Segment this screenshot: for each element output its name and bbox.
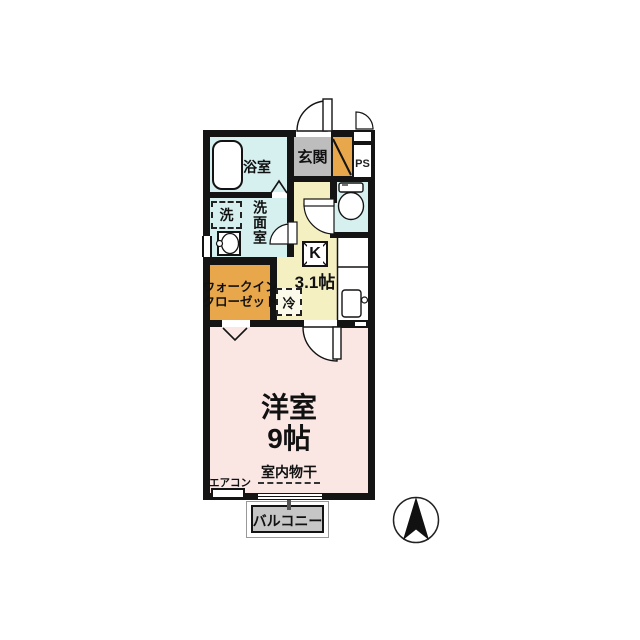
plan-symbols-layer (0, 0, 640, 640)
washing-machine-label: 洗 (211, 201, 242, 229)
washroom-door (270, 222, 297, 244)
kitchen-label-text: K (307, 245, 323, 263)
air-conditioner-label: エアコン (209, 475, 251, 490)
bathroom-label: 浴室 (243, 157, 271, 177)
entrance-door (297, 99, 332, 131)
balcony-label: バルコニー (250, 511, 325, 531)
shoe-cabinet-diagonal (333, 139, 351, 175)
toilet-icon (339, 183, 364, 220)
washbasin-icon (217, 234, 239, 254)
pipe-space-label: PS (352, 158, 373, 170)
north-compass-icon (394, 497, 439, 543)
refrigerator-label: 冷 (276, 288, 302, 316)
toilet-door (304, 199, 334, 234)
kitchen-sink-icon (342, 290, 368, 317)
indoor-drying-label: 室内物干 (256, 462, 322, 482)
western-room-size-label: 9帖 (210, 417, 368, 457)
walk-in-closet-label-2: クローゼット (210, 291, 270, 310)
entrance-label: 玄関 (294, 146, 331, 167)
kitchen-label: K (302, 241, 328, 267)
ps-door (356, 112, 373, 129)
closet-folding-door-icon (223, 328, 247, 340)
floor-plan-page: { "colors": { "wall": "#141414", "water_… (0, 0, 640, 640)
bathroom-folding-door-icon (271, 181, 287, 193)
kitchen-living-door (303, 327, 341, 361)
washroom-label: 洗面室 (250, 200, 270, 260)
